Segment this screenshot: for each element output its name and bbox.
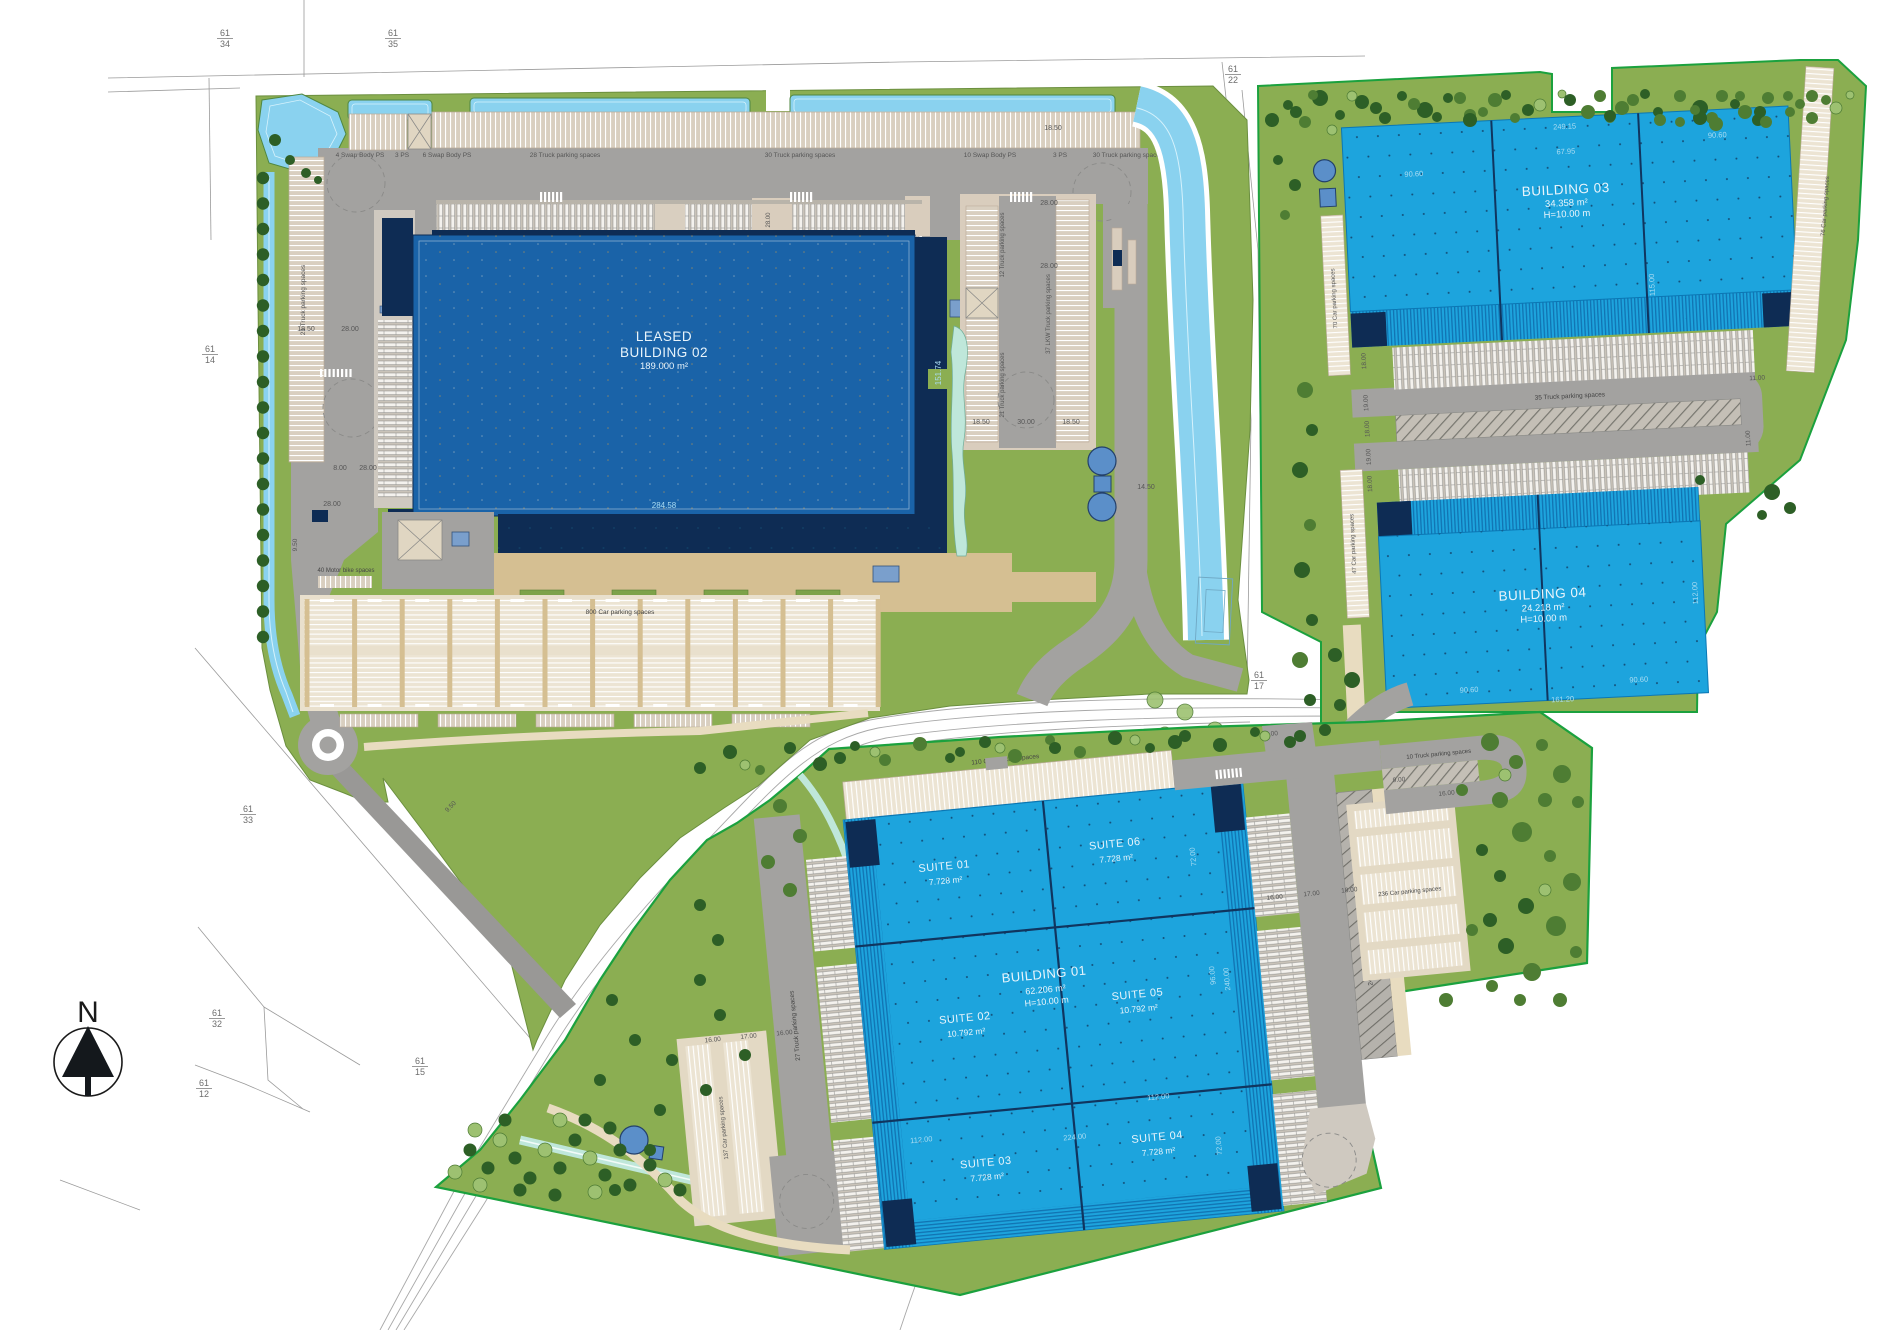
svg-text:12 Truck parking spaces: 12 Truck parking spaces bbox=[1000, 212, 1006, 277]
svg-text:H=10.00 m: H=10.00 m bbox=[1520, 612, 1567, 625]
svg-text:12: 12 bbox=[199, 1089, 209, 1099]
svg-text:30 Truck parking spaces: 30 Truck parking spaces bbox=[765, 152, 836, 159]
svg-text:61: 61 bbox=[1228, 64, 1238, 74]
svg-text:90.60: 90.60 bbox=[1459, 685, 1478, 695]
svg-text:19.00: 19.00 bbox=[1365, 448, 1373, 465]
svg-text:151.74: 151.74 bbox=[934, 360, 943, 385]
svg-text:112.00: 112.00 bbox=[1690, 582, 1700, 605]
svg-text:35: 35 bbox=[388, 39, 398, 49]
svg-text:9.00: 9.00 bbox=[1392, 776, 1406, 784]
svg-text:21 Truck parking spaces: 21 Truck parking spaces bbox=[1000, 352, 1006, 417]
svg-text:28.00: 28.00 bbox=[1040, 263, 1058, 270]
svg-text:28.00: 28.00 bbox=[1040, 200, 1058, 207]
svg-text:28.00: 28.00 bbox=[359, 465, 377, 472]
svg-text:22: 22 bbox=[1228, 75, 1238, 85]
svg-text:10 Swap Body PS: 10 Swap Body PS bbox=[964, 152, 1017, 159]
svg-text:4 Swap Body PS: 4 Swap Body PS bbox=[336, 152, 385, 159]
svg-text:11.00: 11.00 bbox=[1749, 374, 1765, 382]
svg-text:21 Truck parking spaces: 21 Truck parking spaces bbox=[300, 264, 307, 335]
svg-text:28.00: 28.00 bbox=[766, 212, 772, 228]
svg-text:3 PS: 3 PS bbox=[1053, 152, 1068, 159]
svg-text:9.50: 9.50 bbox=[292, 538, 299, 551]
svg-text:28.00: 28.00 bbox=[341, 326, 359, 333]
svg-text:34: 34 bbox=[220, 39, 230, 49]
svg-text:90.60: 90.60 bbox=[1708, 130, 1727, 140]
svg-text:800 Car parking spaces: 800 Car parking spaces bbox=[586, 609, 655, 616]
svg-text:37 LKW Truck parking spaces: 37 LKW Truck parking spaces bbox=[1046, 274, 1052, 354]
svg-text:18.50: 18.50 bbox=[1044, 125, 1062, 132]
svg-text:6 Swap Body PS: 6 Swap Body PS bbox=[423, 152, 472, 159]
svg-text:11.00: 11.00 bbox=[1745, 430, 1753, 446]
svg-text:18.00: 18.00 bbox=[1364, 420, 1372, 437]
svg-text:28.00: 28.00 bbox=[323, 501, 341, 508]
svg-text:18.50: 18.50 bbox=[972, 419, 990, 426]
svg-text:40 Motor bike spaces: 40 Motor bike spaces bbox=[317, 568, 374, 574]
svg-text:18.00: 18.00 bbox=[1360, 352, 1368, 369]
svg-text:61: 61 bbox=[205, 344, 215, 354]
svg-text:96.00: 96.00 bbox=[1207, 966, 1218, 986]
svg-text:72.00: 72.00 bbox=[1213, 1136, 1224, 1156]
svg-text:14: 14 bbox=[205, 355, 215, 365]
svg-text:67.95: 67.95 bbox=[1556, 146, 1575, 156]
svg-text:189.000 m²: 189.000 m² bbox=[640, 361, 688, 372]
svg-text:115.00: 115.00 bbox=[1647, 273, 1657, 296]
svg-text:30 Truck parking spaces: 30 Truck parking spaces bbox=[1093, 152, 1164, 159]
svg-text:161.20: 161.20 bbox=[1551, 694, 1574, 704]
svg-text:32: 32 bbox=[212, 1019, 222, 1029]
svg-text:72.00: 72.00 bbox=[1188, 847, 1199, 867]
svg-text:18.50: 18.50 bbox=[297, 326, 315, 333]
svg-text:61: 61 bbox=[212, 1008, 222, 1018]
svg-text:30.00: 30.00 bbox=[1017, 419, 1035, 426]
svg-text:19.00: 19.00 bbox=[1363, 394, 1371, 411]
svg-text:18.50: 18.50 bbox=[1062, 419, 1080, 426]
svg-text:61: 61 bbox=[1254, 670, 1264, 680]
svg-text:H=10.00 m: H=10.00 m bbox=[1543, 208, 1590, 221]
svg-text:LEASED: LEASED bbox=[636, 329, 692, 344]
svg-text:17: 17 bbox=[1254, 681, 1264, 691]
svg-text:61: 61 bbox=[199, 1078, 209, 1088]
svg-text:61: 61 bbox=[415, 1056, 425, 1066]
svg-text:BUILDING 02: BUILDING 02 bbox=[620, 345, 708, 360]
svg-text:3 PS: 3 PS bbox=[395, 152, 410, 159]
svg-text:33: 33 bbox=[243, 815, 253, 825]
svg-text:28 Truck parking spaces: 28 Truck parking spaces bbox=[530, 152, 601, 159]
svg-text:249.15: 249.15 bbox=[1553, 121, 1576, 131]
svg-text:15: 15 bbox=[415, 1067, 425, 1077]
svg-text:61: 61 bbox=[220, 28, 230, 38]
svg-text:61: 61 bbox=[243, 804, 253, 814]
svg-text:284.58: 284.58 bbox=[652, 501, 677, 510]
svg-text:90.60: 90.60 bbox=[1404, 169, 1423, 179]
svg-text:14.50: 14.50 bbox=[1137, 484, 1155, 491]
svg-text:61: 61 bbox=[388, 28, 398, 38]
svg-text:N: N bbox=[77, 996, 99, 1029]
svg-text:8.00: 8.00 bbox=[333, 465, 347, 472]
svg-text:90.60: 90.60 bbox=[1629, 675, 1648, 685]
svg-text:18.00: 18.00 bbox=[1366, 475, 1374, 492]
